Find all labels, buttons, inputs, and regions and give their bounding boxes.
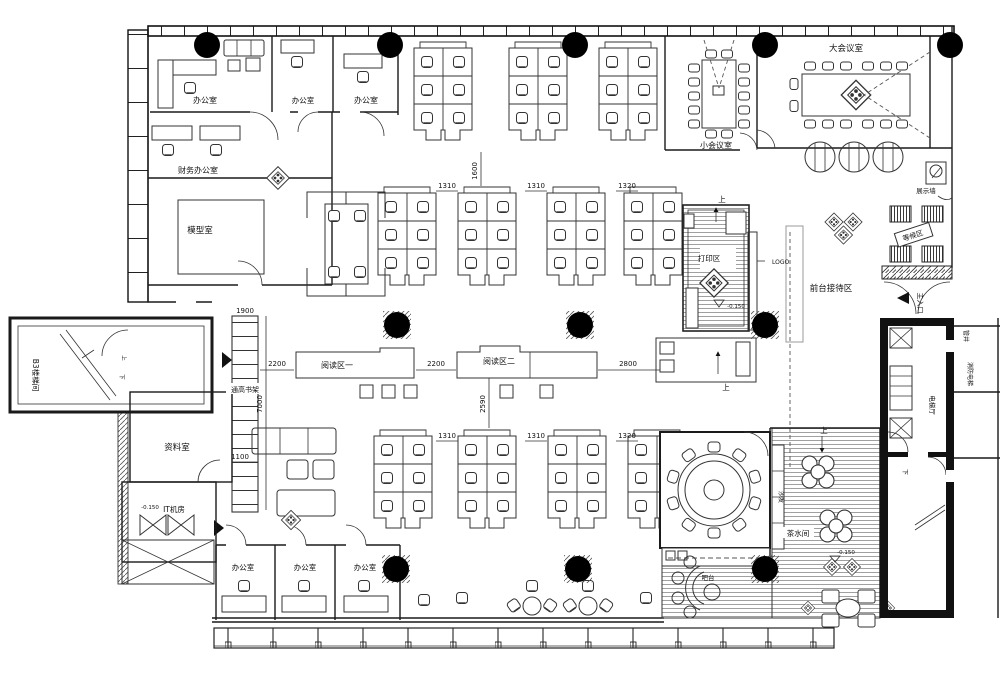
level-mark-print: -0.150	[727, 304, 745, 310]
label-model-room: 模型室	[187, 225, 213, 236]
label-reading-area-1: 阅读区一	[321, 360, 353, 370]
label-logo-wall: LOGO	[772, 259, 790, 266]
dim-2200-1: 2200	[268, 360, 286, 368]
b3-stair-block	[10, 302, 212, 412]
rooms-bottom-offices	[216, 525, 400, 620]
dim-2800: 2800	[619, 360, 637, 368]
label-finance-office: 财务办公室	[178, 165, 218, 175]
sofa-office-a	[224, 40, 264, 56]
label-display-wall: 展示墙	[916, 186, 936, 195]
label-bottom-office-1: 办公室	[232, 562, 255, 572]
casual-seating	[419, 581, 652, 616]
label-office-2: 办公室	[292, 95, 315, 105]
label-pipe-shaft: 管井	[962, 330, 970, 342]
label-reading-area-2: 阅读区二	[483, 356, 515, 366]
building-core	[880, 318, 1000, 618]
floor-plan-drawing: 办公室 办公室 办公室 财务办公室 模型室 小会议室 大会议室 展示墙 等候区 …	[0, 0, 1000, 677]
lounge-sofa-set	[252, 428, 336, 516]
label-print-area: 打印区	[698, 253, 721, 263]
label-main-entrance: 主入口	[916, 293, 925, 314]
room-small-meeting	[665, 36, 757, 150]
label-bar-counter: 吧台	[702, 573, 715, 582]
dim-1100: 1100	[231, 453, 249, 461]
dim-7000: 7000	[256, 395, 264, 413]
terrace-colonnade	[212, 618, 834, 648]
label-small-meeting: 小会议室	[700, 140, 732, 150]
workstations-row-middle	[378, 187, 682, 285]
up-mark-tea: 上	[820, 426, 828, 435]
room-finance-office	[148, 112, 332, 285]
label-tea-room: 茶水间	[787, 528, 810, 538]
workstations-row-bottom	[374, 430, 686, 528]
dim-1900: 1900	[236, 307, 254, 315]
up-mark-b3: 上	[120, 355, 128, 361]
desk-quad-group	[307, 192, 385, 296]
print-area	[683, 205, 749, 331]
label-it-room: IT机房	[163, 504, 185, 514]
label-office-3: 办公室	[354, 95, 378, 105]
floor-plan-canvas: 办公室 办公室 办公室 财务办公室 模型室 小会议室 大会议室 展示墙 等候区 …	[0, 0, 1000, 677]
reading-area-2	[457, 346, 597, 398]
round-stools	[805, 142, 903, 172]
dim-1600: 1600	[471, 162, 479, 180]
label-reception-area: 前台接待区	[810, 283, 853, 294]
dim-1310-top-2: 1310	[527, 182, 545, 190]
up-mark-stair: 上	[722, 383, 730, 392]
level-mark-tea: -0.150	[837, 550, 855, 556]
stair-south-of-print	[656, 338, 756, 382]
up-mark-print: 上	[718, 195, 726, 204]
label-big-meeting: 大会议室	[829, 43, 864, 54]
dim-2200-2: 2200	[427, 360, 445, 368]
label-bottom-office-3: 办公室	[354, 562, 377, 572]
dim-1310-top-1: 1310	[438, 182, 456, 190]
label-fire-elevator: 消防电梯	[966, 362, 974, 386]
dim-1310-bot-1: 1310	[438, 432, 456, 440]
dim-2590: 2590	[479, 395, 487, 413]
label-tall-bookshelf: 通高书架	[231, 385, 259, 394]
reading-area-1	[296, 348, 417, 398]
level-mark-it: -0.150	[141, 505, 159, 511]
curtain-wall-top	[148, 26, 954, 36]
room-it	[122, 482, 216, 584]
down-mark-core: 下	[901, 469, 908, 475]
dim-1320-top: 1320	[618, 182, 636, 190]
reception-desk	[786, 213, 862, 342]
room-model-room	[178, 200, 264, 285]
tall-bookshelf	[214, 316, 258, 536]
label-elevator-hall: 电梯厅	[928, 395, 937, 415]
workstations-row-top	[414, 42, 657, 140]
dim-1310-bot-2: 1310	[527, 432, 545, 440]
room-round-table	[660, 432, 770, 548]
label-office-1: 办公室	[193, 95, 217, 105]
dim-1320-bot: 1320	[618, 432, 636, 440]
label-bottom-office-2: 办公室	[294, 562, 317, 572]
label-archive-room: 资料室	[164, 442, 190, 453]
label-sofa: 沙发	[777, 491, 785, 503]
down-mark-b3: 下	[118, 374, 125, 380]
label-b3-stair: B3楼梯间	[31, 359, 41, 391]
